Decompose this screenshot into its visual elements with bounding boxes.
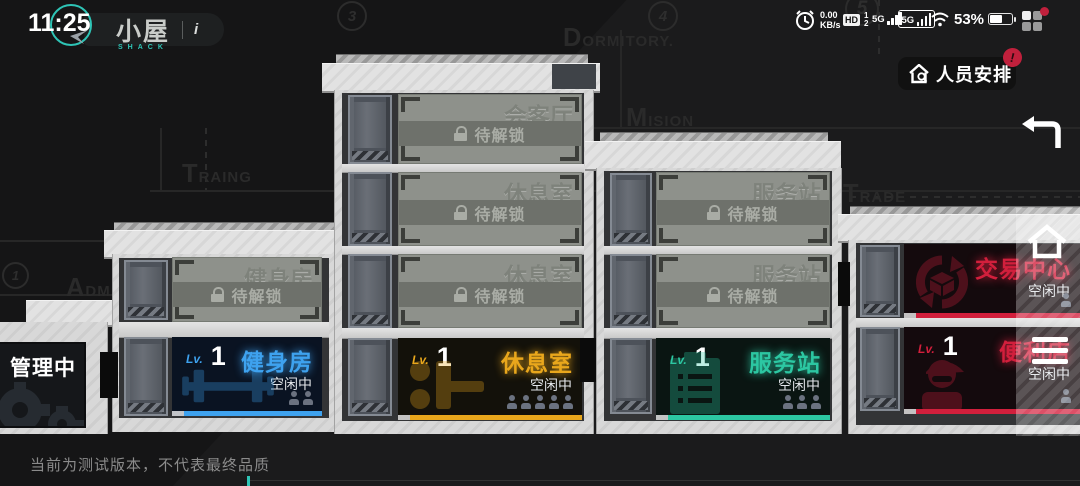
unlock-label: 待解锁 xyxy=(474,201,525,225)
person-icon xyxy=(811,395,821,409)
corner-bracket xyxy=(175,260,194,275)
undo-arrow-icon xyxy=(1020,114,1066,156)
unlock-label: 待解锁 xyxy=(727,201,778,225)
divider xyxy=(182,21,183,39)
service-roof xyxy=(585,141,841,171)
blueprint-line xyxy=(0,240,115,242)
corner-bracket xyxy=(659,228,678,243)
corner-bracket xyxy=(560,310,579,325)
room-status: 空闲中 xyxy=(530,375,572,395)
home-icon xyxy=(1026,224,1068,260)
app-grid-icon[interactable] xyxy=(1022,11,1042,31)
person-icon xyxy=(507,395,517,409)
elevator-pillar xyxy=(610,173,652,246)
room-gym-locked[interactable]: 健身房 待解锁 xyxy=(172,257,322,322)
info-button[interactable]: i xyxy=(194,21,198,38)
unlock-banner: 待解锁 xyxy=(399,200,581,225)
corner-bracket xyxy=(560,146,579,161)
battery-icon xyxy=(988,13,1013,25)
room-accent-bar xyxy=(172,411,322,416)
building-gap xyxy=(838,262,850,306)
lock-icon xyxy=(454,126,467,141)
person-icon xyxy=(521,395,531,409)
unlock-label: 待解锁 xyxy=(727,283,778,307)
undo-button[interactable] xyxy=(1020,114,1066,161)
personnel-arrange-button[interactable]: 人员安排 ! xyxy=(898,57,1016,90)
blueprint-marker-1: 1 xyxy=(2,262,29,289)
elevator-pillar xyxy=(348,95,392,164)
sim-indicator: 1 2 xyxy=(864,12,868,28)
unlock-banner: 待解锁 xyxy=(173,282,321,307)
clipboard-icon xyxy=(668,352,724,414)
person-icon xyxy=(289,391,299,405)
blueprint-line xyxy=(160,128,162,192)
room-lounge-locked[interactable]: 休息室 待解锁 xyxy=(398,254,582,328)
room-service-locked[interactable]: 服务站 待解锁 xyxy=(656,172,830,246)
clerk-icon xyxy=(914,352,980,412)
room-gym[interactable]: Lv. 1 健身房 空闲中 xyxy=(172,337,322,416)
elevator-pillar xyxy=(860,245,900,317)
corner-bracket xyxy=(808,310,827,325)
elevator-pillar xyxy=(124,337,168,416)
unlock-banner: 待解锁 xyxy=(657,282,829,307)
corner-bracket xyxy=(401,97,420,112)
corner-bracket xyxy=(659,175,678,190)
unlock-label: 待解锁 xyxy=(231,283,282,307)
lock-icon xyxy=(454,287,467,302)
unlock-banner: 待解锁 xyxy=(399,282,581,307)
unlock-label: 待解锁 xyxy=(474,283,525,307)
network-speed: 0.00 KB/s xyxy=(820,10,841,30)
alarm-clock-icon xyxy=(794,9,816,36)
blueprint-marker-3: 3 xyxy=(337,1,367,31)
room-status: 空闲中 xyxy=(778,375,820,395)
clock-time: 11:25 xyxy=(28,9,91,38)
corner-bracket xyxy=(808,228,827,243)
room-meeting-locked[interactable]: 会客厅 待解锁 xyxy=(398,94,582,164)
footer-accent-tick xyxy=(247,476,250,486)
person-icon xyxy=(303,391,313,405)
room-lounge[interactable]: Lv. 1 休息室 空闲中 xyxy=(398,338,582,420)
unlock-banner: 待解锁 xyxy=(399,121,581,146)
elevator-pillar xyxy=(348,254,392,328)
person-icon xyxy=(535,395,545,409)
corner-bracket xyxy=(401,310,420,325)
staff-slots xyxy=(503,395,573,409)
corner-bracket xyxy=(659,310,678,325)
elevator-pillar xyxy=(860,327,900,411)
room-accent-bar xyxy=(398,415,582,420)
person-icon xyxy=(549,395,559,409)
blueprint-label-trade: Trade xyxy=(843,180,906,209)
dumbbell-icon xyxy=(180,365,276,407)
elevator-pillar xyxy=(348,172,392,246)
unlock-banner: 待解锁 xyxy=(657,200,829,225)
corner-bracket xyxy=(659,257,678,272)
page-title-bar: 小屋 SHACK i xyxy=(84,13,224,46)
blueprint-label-admin: Adm xyxy=(66,274,111,303)
building-gap xyxy=(100,352,118,398)
blueprint-label-dormitory: Dormitory. xyxy=(563,24,674,53)
elevator-pillar xyxy=(124,260,168,320)
gear-icon xyxy=(0,370,86,428)
battery-percent: 53% xyxy=(954,11,984,28)
blueprint-label-training: Traing xyxy=(182,160,252,189)
elevator-pillar xyxy=(348,338,392,416)
elevator-pillar xyxy=(610,254,652,328)
corner-bracket xyxy=(560,228,579,243)
person-icon xyxy=(563,395,573,409)
footer-divider xyxy=(250,480,1080,481)
room-name: 服务站 xyxy=(749,344,821,378)
page-subtitle: SHACK xyxy=(118,44,168,51)
room-service[interactable]: Lv. 1 服务站 空闲中 xyxy=(656,338,830,420)
corner-bracket xyxy=(401,175,420,190)
staff-slots xyxy=(285,391,313,405)
base-screen: 3 4 1 5 Dormitory. Mision Traing Trade A… xyxy=(0,0,1080,486)
menu-button[interactable] xyxy=(1032,337,1068,370)
person-icon xyxy=(797,395,807,409)
home-button[interactable] xyxy=(1026,224,1068,265)
room-admin-center[interactable]: 管理中心 xyxy=(0,342,86,428)
home-search-icon xyxy=(908,64,930,84)
menu-bar xyxy=(1032,359,1068,364)
sofa-icon xyxy=(406,359,488,411)
room-name: 休息室 xyxy=(501,344,573,378)
personnel-arrange-label: 人员安排 xyxy=(936,61,1012,87)
menu-bar xyxy=(1032,337,1068,342)
lock-icon xyxy=(707,205,720,220)
roof-vent xyxy=(552,64,596,89)
staff-slots xyxy=(779,395,821,409)
corner-bracket xyxy=(401,228,420,243)
gym-floor-band xyxy=(119,322,329,338)
person-icon xyxy=(783,395,793,409)
lock-icon xyxy=(211,287,224,302)
notification-dot xyxy=(1040,7,1049,16)
trade-cycle-icon xyxy=(910,250,974,314)
blueprint-label-mission: Mision xyxy=(626,104,694,133)
room-lounge-locked[interactable]: 休息室 待解锁 xyxy=(398,172,582,246)
room-service-locked[interactable]: 服务站 待解锁 xyxy=(656,254,830,328)
hd-badge: HD xyxy=(843,14,860,26)
lock-icon xyxy=(454,205,467,220)
lock-icon xyxy=(707,287,720,302)
building-gap xyxy=(580,338,596,382)
room-accent-bar xyxy=(656,415,830,420)
beta-disclaimer: 当前为测试版本，不代表最终品质 xyxy=(30,454,270,475)
corner-bracket xyxy=(401,257,420,272)
corner-bracket xyxy=(401,146,420,161)
wifi-icon xyxy=(930,12,950,32)
menu-bar xyxy=(1032,348,1068,353)
elevator-pillar xyxy=(610,338,652,414)
unlock-label: 待解锁 xyxy=(474,122,525,146)
page-title: 小屋 xyxy=(116,12,170,48)
